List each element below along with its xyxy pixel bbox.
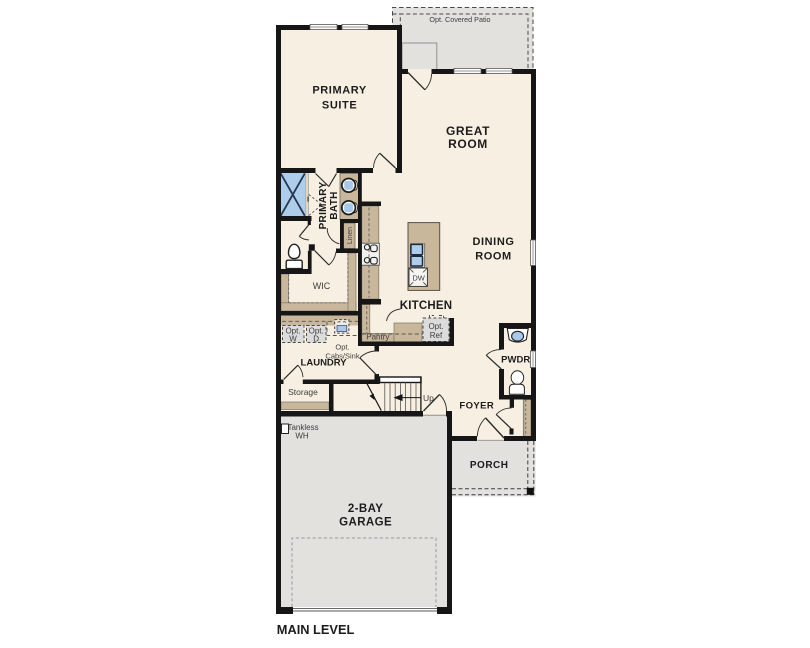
svg-text:PRIMARY: PRIMARY xyxy=(312,85,367,97)
svg-text:Storage: Storage xyxy=(288,387,318,397)
svg-text:DINING: DINING xyxy=(472,236,514,248)
svg-text:ROOM: ROOM xyxy=(475,251,512,263)
svg-text:WIC: WIC xyxy=(313,281,331,291)
svg-text:Opt. Covered Patio: Opt. Covered Patio xyxy=(429,15,490,24)
svg-text:PRIMARY: PRIMARY xyxy=(318,182,329,230)
svg-text:KITCHEN: KITCHEN xyxy=(400,300,453,312)
svg-text:Opt.: Opt. xyxy=(335,343,349,352)
svg-text:FOYER: FOYER xyxy=(459,400,494,411)
svg-text:2-BAY: 2-BAY xyxy=(348,503,383,515)
svg-text:W: W xyxy=(289,335,297,344)
svg-text:GREAT: GREAT xyxy=(446,124,490,138)
svg-text:D: D xyxy=(313,335,319,344)
svg-text:GARAGE: GARAGE xyxy=(339,517,392,529)
svg-text:Opt.: Opt. xyxy=(428,322,443,331)
svg-text:LAUNDRY: LAUNDRY xyxy=(301,358,348,369)
svg-text:Linen: Linen xyxy=(347,227,354,244)
svg-text:BATH: BATH xyxy=(329,191,340,219)
svg-text:WH: WH xyxy=(295,432,309,441)
svg-text:Ref: Ref xyxy=(430,331,443,340)
svg-text:ROOM: ROOM xyxy=(448,137,488,151)
svg-text:SUITE: SUITE xyxy=(322,100,357,112)
svg-text:PWDR: PWDR xyxy=(501,354,530,365)
svg-text:DW: DW xyxy=(412,273,425,282)
svg-text:PORCH: PORCH xyxy=(470,460,509,471)
svg-text:MAIN LEVEL: MAIN LEVEL xyxy=(277,622,355,637)
